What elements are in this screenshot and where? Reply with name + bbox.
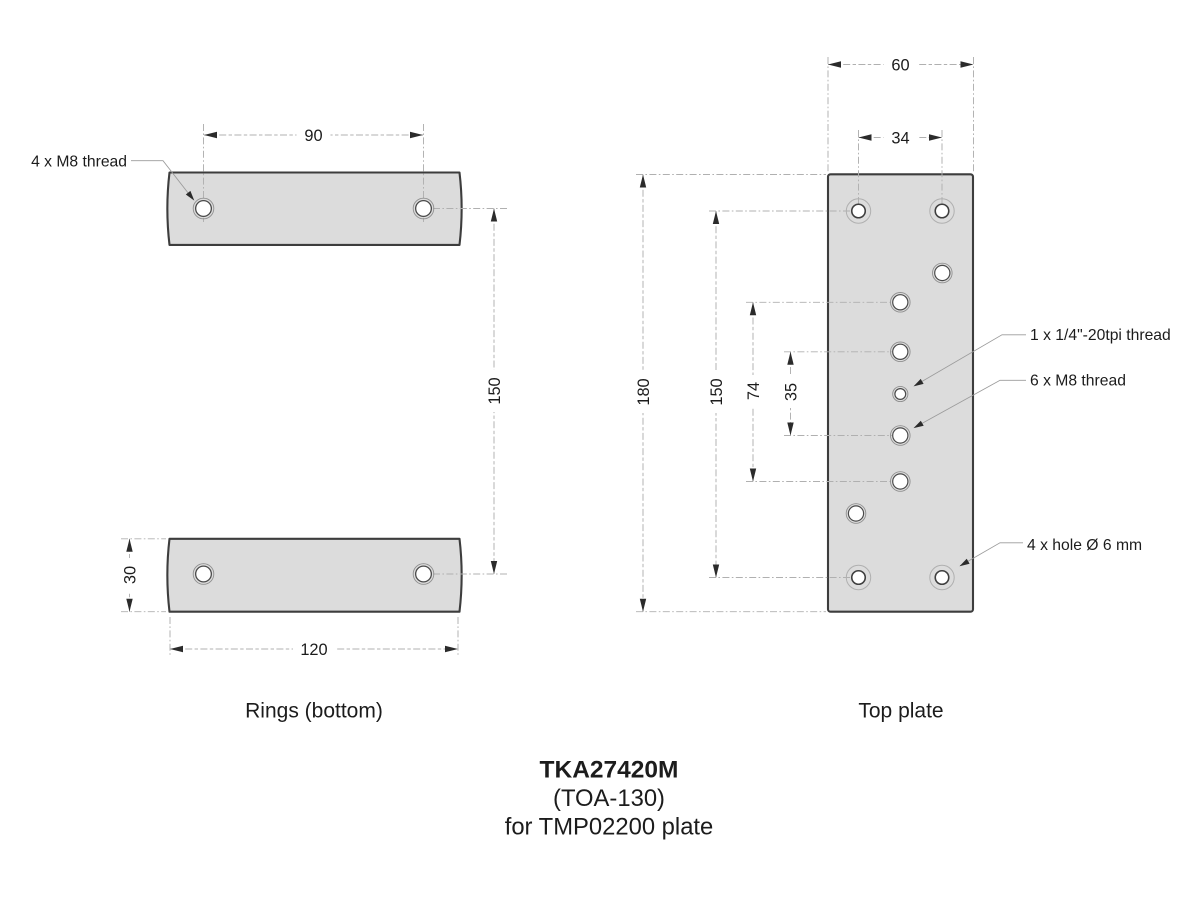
svg-text:Rings (bottom): Rings (bottom) [245, 700, 383, 723]
svg-text:Top plate: Top plate [858, 700, 943, 723]
svg-text:180: 180 [635, 378, 653, 405]
svg-text:35: 35 [782, 383, 800, 401]
svg-text:150: 150 [708, 378, 726, 405]
svg-text:4 x hole Ø 6 mm: 4 x hole Ø 6 mm [1027, 537, 1142, 554]
svg-text:for TMP02200 plate: for TMP02200 plate [505, 814, 714, 841]
svg-text:90: 90 [304, 127, 322, 145]
svg-text:150: 150 [486, 377, 504, 404]
svg-text:74: 74 [745, 382, 763, 400]
svg-text:(TOA-130): (TOA-130) [553, 785, 665, 812]
svg-text:34: 34 [891, 129, 909, 147]
svg-text:120: 120 [300, 641, 327, 659]
svg-text:4 x M8 thread: 4 x M8 thread [31, 153, 127, 170]
svg-text:1 x 1/4"-20tpi thread: 1 x 1/4"-20tpi thread [1030, 327, 1171, 344]
svg-text:60: 60 [891, 56, 909, 74]
svg-text:TKA27420M: TKA27420M [540, 757, 679, 784]
svg-text:30: 30 [121, 566, 139, 584]
svg-text:6 x M8 thread: 6 x M8 thread [1030, 372, 1126, 389]
